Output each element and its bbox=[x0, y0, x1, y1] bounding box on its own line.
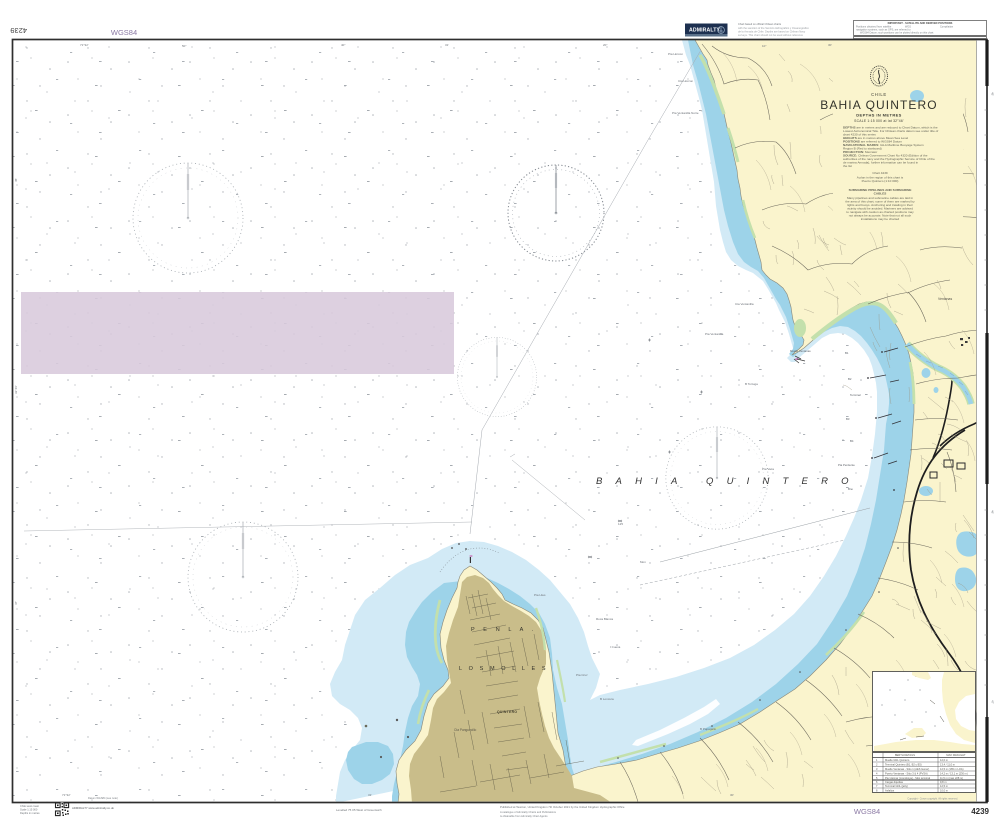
svg-text:ADMIRALTY www.admiralty.co.uk: ADMIRALTY www.admiralty.co.uk bbox=[72, 806, 114, 810]
svg-text:32°46': 32°46' bbox=[14, 385, 18, 394]
svg-text:Terminal GNL (jetty): Terminal GNL (jetty) bbox=[885, 784, 908, 788]
svg-text:SCALE 1:15 000 at lat 32°46': SCALE 1:15 000 at lat 32°46' bbox=[854, 119, 904, 123]
svg-text:13,4 / 11,0 m: 13,4 / 11,0 m bbox=[940, 763, 955, 767]
svg-text:45': 45' bbox=[14, 178, 18, 182]
svg-text:12‌5: 12‌5 bbox=[618, 522, 623, 526]
svg-text:I Cueva: I Cueva bbox=[610, 645, 621, 649]
svg-text:L O S M O L L E S: L O S M O L L E S bbox=[459, 666, 548, 672]
svg-text:Muelle GNL Quintero: Muelle GNL Quintero bbox=[885, 758, 910, 762]
svg-text:installations may be charted: installations may be charted bbox=[861, 217, 900, 221]
svg-text:12,5 m: 12,5 m bbox=[940, 784, 948, 788]
svg-text:45': 45' bbox=[991, 92, 995, 96]
svg-text:Cta Panguecillo: Cta Panguecillo bbox=[454, 728, 477, 732]
svg-text:71°32': 71°32' bbox=[62, 793, 71, 797]
svg-text:is obtainable from Admiralty C: is obtainable from Admiralty Chart Agent… bbox=[500, 814, 548, 818]
svg-text:Bno: Bno bbox=[848, 487, 853, 491]
svg-text:IMPORTANT - SATELLITE AND DERI: IMPORTANT - SATELLITE AND DERIVED POSITI… bbox=[888, 21, 953, 25]
svg-text:Compilation: Compilation bbox=[940, 26, 954, 29]
svg-text:30': 30' bbox=[730, 793, 734, 797]
svg-text:Muelle Ventanas: Muelle Ventanas bbox=[790, 349, 811, 353]
svg-text:47': 47' bbox=[14, 601, 18, 605]
svg-text:Published at Taunton, United K: Published at Taunton, United Kingdom 7th… bbox=[500, 805, 625, 809]
svg-text:Scale 1:15 000: Scale 1:15 000 bbox=[20, 808, 38, 812]
svg-text:Copyright - Crown copyright. A: Copyright - Crown copyright. All rights … bbox=[907, 798, 958, 801]
svg-text:Terminal Quintero (B1, B2 y B3: Terminal Quintero (B1, B2 y B3) bbox=[885, 763, 922, 767]
svg-text:12,5 m (165 m LOA): 12,5 m (165 m LOA) bbox=[940, 767, 964, 771]
svg-text:de marina Armada), further inf: de marina Armada), further information c… bbox=[843, 161, 918, 165]
svg-text:Puerto Ventanas - Sitio 3 & 4: Puerto Ventanas - Sitio 3 & 4 (PVSA) bbox=[885, 772, 928, 776]
svg-text:14,2 m / 13,1 m (230 m): 14,2 m / 13,1 m (230 m) bbox=[940, 772, 968, 776]
svg-text:4239: 4239 bbox=[971, 807, 989, 816]
svg-text:Levelled 75 05 West of Greenw: Levelled 75 05 West of Greenwich bbox=[336, 808, 382, 812]
svg-text:WGS84: WGS84 bbox=[111, 28, 137, 37]
svg-text:BAHIA QUINTERO: BAHIA QUINTERO bbox=[596, 476, 862, 487]
svg-text:9,8 m: 9,8 m bbox=[940, 780, 947, 784]
svg-text:Pta Vaca: Pta Vaca bbox=[762, 467, 774, 471]
svg-text:50": 50" bbox=[182, 44, 186, 48]
svg-text:10,0 m: 10,0 m bbox=[940, 789, 948, 793]
svg-text:with the sanction of the Servi: with the sanction of the Servicio Hidrog… bbox=[738, 26, 809, 30]
svg-text:Cargas liquidas: Cargas liquidas bbox=[885, 780, 904, 784]
svg-text:BAHIA QUINTERO: BAHIA QUINTERO bbox=[820, 98, 937, 112]
svg-text:4239: 4239 bbox=[10, 26, 27, 35]
svg-text:surveys. This chart should not: surveys. This chart should not be used w… bbox=[738, 33, 804, 37]
svg-text:Pta Ventanilla Norte: Pta Ventanilla Norte bbox=[672, 111, 699, 115]
svg-text:10": 10" bbox=[762, 44, 766, 48]
svg-text:P E N L A .: P E N L A . bbox=[471, 627, 537, 633]
svg-text:Ventanas: Ventanas bbox=[938, 297, 952, 301]
svg-text:WGS: WGS bbox=[905, 26, 911, 29]
svg-text:Asfaltos: Asfaltos bbox=[885, 789, 895, 793]
svg-text:WGS84 Datum; such positions ca: WGS84 Datum; such positions can be plott… bbox=[860, 32, 934, 35]
svg-text:Terminal: Terminal bbox=[850, 393, 861, 397]
svg-text:QUINTERO: QUINTERO bbox=[497, 710, 517, 714]
svg-text:11,5 m (max 228 m): 11,5 m (max 228 m) bbox=[940, 776, 963, 780]
svg-text:B Papagallo: B Papagallo bbox=[700, 727, 717, 731]
svg-text:CABLES: CABLES bbox=[874, 192, 887, 196]
svg-text:B2: B2 bbox=[848, 377, 852, 381]
svg-text:31': 31' bbox=[368, 793, 372, 797]
svg-text:MAX DRAUGHT: MAX DRAUGHT bbox=[946, 753, 966, 757]
svg-text:Pier Asimar (monoboya) - Sitio: Pier Asimar (monoboya) - Sitio terminal bbox=[885, 776, 931, 780]
svg-text:B4: B4 bbox=[850, 439, 854, 443]
svg-text:31': 31' bbox=[445, 43, 449, 47]
svg-text:ADMIRALTY: ADMIRALTY bbox=[689, 28, 720, 34]
svg-text:Chile west coast: Chile west coast bbox=[20, 804, 39, 808]
svg-text:Depths in metres: Depths in metres bbox=[20, 811, 40, 815]
svg-text:the list: the list bbox=[843, 164, 852, 168]
svg-text:Mon: Mon bbox=[640, 560, 646, 564]
svg-text:BERTH DETAILS: BERTH DETAILS bbox=[895, 753, 915, 757]
svg-text:Chart based on official Chilea: Chart based on official Chilean charts bbox=[738, 22, 782, 26]
svg-text:Cta Ventanilla: Cta Ventanilla bbox=[735, 302, 754, 306]
svg-text:CHILE: CHILE bbox=[871, 92, 887, 97]
svg-text:B Tortuga: B Tortuga bbox=[745, 382, 758, 386]
svg-text:Cta Horcon: Cta Horcon bbox=[678, 79, 694, 83]
svg-text:12,0 m: 12,0 m bbox=[940, 758, 948, 762]
svg-text:WGS84: WGS84 bbox=[854, 807, 880, 816]
svg-text:DEPTHS IN METRES: DEPTHS IN METRES bbox=[856, 113, 902, 118]
svg-text:de la Armada de Chile. Depths: de la Armada de Chile. Depths are based … bbox=[738, 30, 806, 34]
svg-text:46': 46' bbox=[991, 510, 995, 514]
svg-text:Datum WGS84 (see note): Datum WGS84 (see note) bbox=[88, 796, 118, 800]
svg-text:Muelle Ventanas - Sitio 1 (AES: Muelle Ventanas - Sitio 1 (AES Gener) bbox=[885, 767, 929, 771]
svg-text:B1: B1 bbox=[845, 351, 849, 355]
svg-text:B Loncura: B Loncura bbox=[600, 697, 614, 701]
svg-text:Roca Blanca: Roca Blanca bbox=[596, 617, 613, 621]
svg-text:Pta Ventanilla: Pta Ventanilla bbox=[705, 332, 724, 336]
svg-text:Pta Penitente: Pta Penitente bbox=[838, 463, 855, 467]
svg-text:Puerto Quintero (1:10 000): Puerto Quintero (1:10 000) bbox=[862, 179, 899, 183]
svg-text:Pta Cruz: Pta Cruz bbox=[576, 673, 588, 677]
svg-text:Pta Horcon: Pta Horcon bbox=[668, 52, 683, 56]
svg-text:40": 40" bbox=[341, 43, 345, 47]
svg-text:71°32': 71°32' bbox=[80, 43, 89, 47]
svg-text:20": 20" bbox=[603, 43, 607, 47]
svg-text:30': 30' bbox=[828, 43, 832, 47]
svg-text:Pta Liles: Pta Liles bbox=[534, 593, 546, 597]
svg-text:Chart 4239: Chart 4239 bbox=[872, 171, 888, 175]
svg-text:B3: B3 bbox=[846, 417, 850, 421]
svg-text:47': 47' bbox=[991, 700, 995, 704]
svg-text:A catalogue of Admiralty Chart: A catalogue of Admiralty Charts and Publ… bbox=[500, 810, 557, 814]
